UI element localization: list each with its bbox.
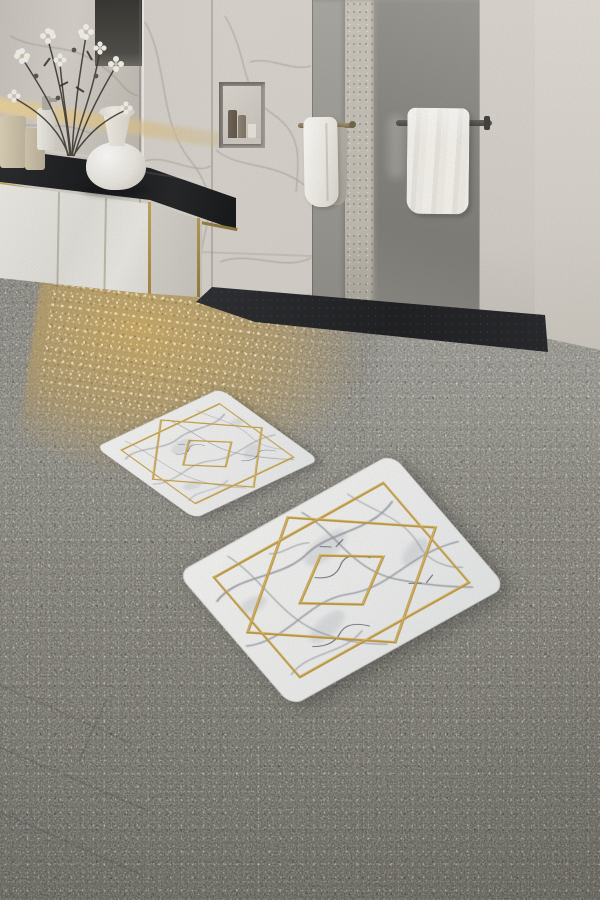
toiletry-bottle [0,116,26,168]
marble-wall-slab [535,0,600,362]
bathroom-product-photo [0,0,600,900]
soap-dispenser [37,108,55,150]
soap-dispenser-spout [49,98,57,102]
countertop-toiletries [0,92,60,172]
vase-lip [99,106,135,118]
flower-vase [82,100,154,196]
niche-jar [248,124,256,138]
white-towel [303,117,339,208]
white-towel [406,108,469,215]
hanging-towel-right-group [396,104,498,220]
mirror-reflection-dark-band [95,0,142,66]
towel-rail-bracket [484,116,490,130]
hanging-towel-left-group [296,112,358,212]
vase-body [86,142,146,190]
towel-rail-cap [349,121,356,128]
